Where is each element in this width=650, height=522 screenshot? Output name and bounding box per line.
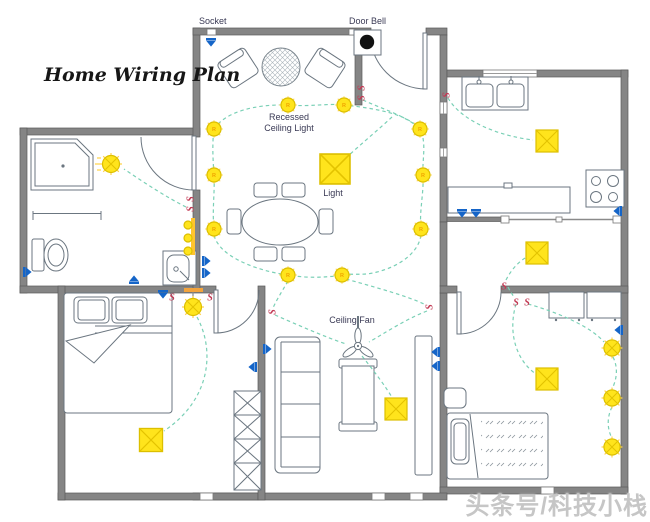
ceiling-light-square-living <box>385 398 407 420</box>
svg-text:S: S <box>524 298 530 309</box>
ceiling-light-right-2 <box>602 388 623 409</box>
dining-table-set <box>227 183 333 261</box>
svg-text:R: R <box>419 227 423 233</box>
kitchen-divider <box>447 216 621 223</box>
ceiling-light-square-left-bedroom <box>139 428 162 451</box>
ceiling-light-right-3 <box>602 437 623 458</box>
recessed-light: R <box>335 96 353 114</box>
floor-plan-svg: R R R R R R R R R R S S S S S S S S S S … <box>0 0 650 522</box>
svg-text:S: S <box>207 293 213 304</box>
svg-text:R: R <box>342 103 346 109</box>
towel-rail <box>33 211 101 220</box>
doorbell-box <box>354 30 381 55</box>
ceiling-light-square-hall <box>526 242 548 264</box>
recessed-light: R <box>205 120 223 138</box>
armchair-right <box>303 47 346 90</box>
door-bell-label: Door Bell <box>349 16 386 26</box>
recessed-light: R <box>205 220 223 238</box>
shower <box>31 139 93 190</box>
svg-text:S: S <box>186 206 197 212</box>
ceiling-light-square-dining <box>320 154 350 184</box>
annotations: Home Wiring Plan Socket Door Bell Recess… <box>43 16 648 520</box>
svg-text:S: S <box>501 282 507 293</box>
recessed-light: R <box>205 166 223 184</box>
svg-text:R: R <box>286 273 290 279</box>
double-bed <box>64 293 172 413</box>
desk-shelf <box>549 292 621 321</box>
svg-text:S: S <box>186 196 197 202</box>
ceiling-light-bathroom <box>95 153 122 175</box>
ceiling-light-square-right-bedroom <box>536 368 558 390</box>
light-label: Light <box>323 188 343 198</box>
socket-dining-1 <box>202 256 211 266</box>
socket-tv-2 <box>431 361 440 371</box>
wardrobe <box>234 391 261 490</box>
socket-dining-2 <box>202 268 211 278</box>
right-bedroom-door <box>457 292 501 334</box>
home-wiring-plan-diagram: R R R R R R R R R R S S S S S S S S S S … <box>0 0 650 522</box>
bathroom-sink <box>163 251 196 285</box>
svg-text:S: S <box>169 293 175 304</box>
ceiling-light-right-1 <box>602 338 623 359</box>
svg-text:S: S <box>442 92 453 98</box>
svg-text:R: R <box>212 227 216 233</box>
recessed-light: R <box>333 266 351 284</box>
svg-text:S: S <box>425 304 436 310</box>
kitchen-counter <box>448 183 570 213</box>
socket-bathroom-bottom <box>129 275 139 284</box>
svg-text:R: R <box>421 173 425 179</box>
socket-living-wall <box>263 344 272 354</box>
recessed-light: R <box>412 220 430 238</box>
single-bed <box>447 413 548 479</box>
ceiling-light-square-kitchen <box>536 130 558 152</box>
tv-stand <box>415 336 432 475</box>
stove <box>586 170 624 207</box>
svg-text:R: R <box>286 103 290 109</box>
bedside-table <box>444 388 466 408</box>
bathroom-door <box>141 136 196 190</box>
recessed-label-line2: Ceiling Light <box>264 123 314 133</box>
svg-text:R: R <box>418 127 422 133</box>
wall-light-strip <box>184 218 195 255</box>
socket-bedroom-wall <box>248 362 257 372</box>
socket-right-bedroom <box>614 325 623 335</box>
svg-text:R: R <box>212 127 216 133</box>
kitchen-window <box>483 70 537 77</box>
socket-kitchen-2 <box>471 209 481 218</box>
svg-text:S: S <box>357 85 368 91</box>
sofa <box>275 337 320 473</box>
socket-tv-1 <box>431 347 440 357</box>
socket-label: Socket <box>199 16 227 26</box>
toilet <box>32 239 68 271</box>
recessed-light: R <box>279 266 297 284</box>
ceiling-fan-label: Ceiling Fan <box>329 315 375 325</box>
coffee-table <box>339 359 377 431</box>
socket-entry <box>206 38 216 47</box>
socket-kitchen-1 <box>457 209 467 218</box>
kitchen-sink <box>462 76 528 110</box>
svg-text:S: S <box>357 95 368 101</box>
recessed-light: R <box>414 166 432 184</box>
svg-text:R: R <box>212 173 216 179</box>
svg-text:R: R <box>340 273 344 279</box>
page-title: Home Wiring Plan <box>43 64 240 86</box>
svg-text:S: S <box>268 309 279 315</box>
svg-text:S: S <box>513 298 519 309</box>
left-bedroom-door <box>214 290 259 333</box>
socket-bathroom-left <box>23 267 32 277</box>
recessed-light: R <box>411 120 429 138</box>
recessed-label-line1: Recessed <box>269 112 309 122</box>
recessed-lights: R R R R R R R R R R <box>205 96 432 284</box>
watermark: 头条号/科技小栈 <box>465 493 648 520</box>
round-rug <box>262 48 300 86</box>
